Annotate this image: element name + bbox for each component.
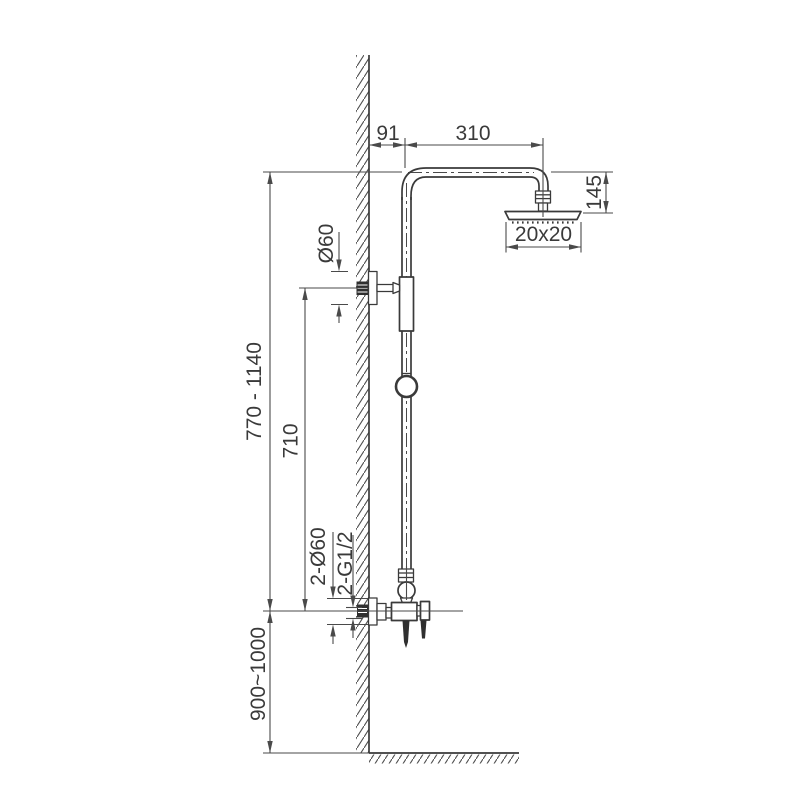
dim-label-arm-length: 310 <box>455 122 490 145</box>
page-background <box>0 0 800 800</box>
dim-label-head-size: 20x20 <box>515 223 572 246</box>
dim-label-connection-thread: 2-G1/2 <box>334 531 357 595</box>
wall-hatching <box>356 55 369 753</box>
dim-label-flange-diameter: 2-Ø60 <box>307 527 330 585</box>
riser-sleeve <box>400 277 414 331</box>
bracket-rod <box>377 285 394 292</box>
slider-ring-circle <box>396 376 417 397</box>
dim-label-bracket-to-mixer: 710 <box>280 423 303 458</box>
dim-label-arm-offset: 91 <box>376 122 399 145</box>
bracket-cone <box>393 283 400 294</box>
shower-system-technical-drawing: 91 310 145 20x20 Ø60 770 - 1140 <box>0 0 800 800</box>
mixer-inlet-step <box>377 604 386 621</box>
floor-hatching <box>369 755 519 764</box>
dim-label-head-drop: 145 <box>583 175 606 210</box>
dim-label-bracket-diameter: Ø60 <box>315 224 338 264</box>
wall-section <box>356 55 369 753</box>
bracket-flange <box>369 272 378 305</box>
dim-label-mixer-install-height: 900~1000 <box>247 627 270 721</box>
dim-label-riser-height: 770 - 1140 <box>243 342 266 441</box>
technical-drawing-page: 91 310 145 20x20 Ø60 770 - 1140 <box>0 0 800 800</box>
